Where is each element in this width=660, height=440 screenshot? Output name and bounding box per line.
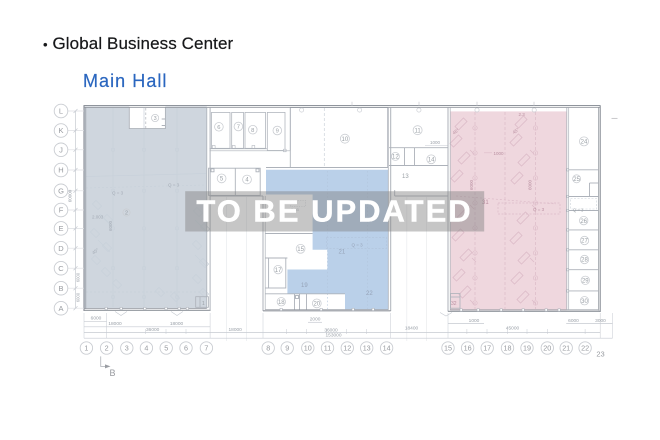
svg-text:Q = 3: Q = 3: [352, 242, 364, 247]
svg-text:Q = 3: Q = 3: [533, 207, 545, 212]
svg-text:15: 15: [297, 247, 304, 253]
svg-text:21: 21: [562, 344, 570, 353]
svg-text:H: H: [58, 166, 63, 175]
svg-text:9: 9: [276, 129, 279, 135]
svg-text:4: 4: [245, 178, 249, 184]
svg-text:28: 28: [581, 258, 588, 264]
svg-text:J: J: [59, 146, 63, 155]
svg-text:27: 27: [581, 239, 588, 245]
svg-text:8: 8: [266, 344, 270, 353]
svg-text:17: 17: [275, 268, 282, 274]
svg-text:6000: 6000: [568, 318, 579, 324]
svg-text:10: 10: [304, 344, 312, 353]
svg-text:24: 24: [581, 140, 588, 146]
svg-text:18000: 18000: [229, 327, 243, 333]
svg-text:6000: 6000: [528, 179, 533, 190]
svg-text:23: 23: [596, 350, 604, 359]
svg-text:1: 1: [84, 344, 88, 353]
svg-text:5: 5: [220, 177, 224, 183]
svg-text:20: 20: [543, 344, 551, 353]
svg-text:22: 22: [581, 344, 589, 353]
svg-text:2.3: 2.3: [519, 112, 526, 117]
svg-text:45000: 45000: [506, 326, 520, 332]
svg-text:1000: 1000: [469, 318, 480, 324]
svg-text:18: 18: [504, 344, 512, 353]
svg-text:Q = 3: Q = 3: [168, 183, 180, 188]
svg-text:L: L: [59, 107, 63, 116]
svg-text:6000: 6000: [108, 220, 113, 231]
svg-text:29: 29: [582, 279, 589, 285]
svg-text:25: 25: [573, 177, 580, 183]
svg-text:A: A: [58, 304, 63, 313]
svg-text:36000: 36000: [324, 327, 338, 333]
svg-text:19: 19: [301, 283, 308, 289]
svg-text:2.003: 2.003: [92, 215, 104, 220]
svg-text:3000: 3000: [595, 318, 606, 324]
svg-text:14: 14: [428, 158, 435, 164]
svg-text:20: 20: [313, 302, 320, 308]
svg-text:12: 12: [343, 344, 351, 353]
svg-text:1000: 1000: [430, 140, 441, 145]
svg-text:13: 13: [363, 344, 371, 353]
svg-text:3: 3: [125, 344, 129, 353]
svg-text:11: 11: [324, 344, 331, 353]
svg-text:3: 3: [154, 116, 157, 122]
svg-text:TO BE UPDATED: TO BE UPDATED: [196, 194, 472, 229]
svg-text:G: G: [58, 187, 64, 196]
svg-text:6000: 6000: [76, 292, 81, 302]
svg-text:21: 21: [339, 250, 346, 256]
svg-text:19: 19: [523, 344, 531, 353]
svg-text:30: 30: [581, 299, 588, 305]
svg-text:7: 7: [237, 125, 240, 131]
svg-text:18: 18: [278, 300, 285, 306]
svg-text:8: 8: [251, 128, 254, 134]
svg-text:16: 16: [464, 344, 472, 353]
svg-text:22: 22: [366, 291, 373, 297]
svg-text:18000: 18000: [108, 321, 122, 327]
svg-text:2: 2: [125, 211, 128, 217]
svg-text:10: 10: [342, 137, 349, 143]
svg-text:E: E: [58, 224, 63, 233]
svg-text:2000: 2000: [310, 317, 321, 323]
svg-text:B: B: [110, 368, 116, 378]
svg-text:1000: 1000: [494, 151, 505, 156]
svg-text:14: 14: [383, 344, 391, 353]
svg-text:17: 17: [483, 344, 491, 353]
svg-text:6000: 6000: [91, 316, 102, 322]
svg-text:12: 12: [392, 155, 399, 161]
svg-text:6: 6: [217, 125, 220, 131]
svg-text:B: B: [58, 284, 63, 293]
svg-text:1: 1: [202, 301, 205, 307]
svg-text:18400: 18400: [405, 326, 419, 332]
svg-text:11: 11: [414, 128, 421, 134]
svg-text:36000: 36000: [146, 327, 160, 333]
svg-text:D: D: [58, 244, 64, 253]
svg-text:153000: 153000: [325, 333, 341, 339]
svg-text:6000: 6000: [76, 272, 81, 282]
svg-text:18000: 18000: [170, 321, 184, 327]
svg-text:C: C: [58, 264, 64, 273]
svg-text:6: 6: [184, 344, 188, 353]
svg-text:32: 32: [451, 301, 457, 307]
svg-text:2: 2: [105, 344, 109, 353]
svg-text:4: 4: [144, 344, 148, 353]
svg-text:Q = 3: Q = 3: [112, 191, 124, 196]
svg-text:Q = 3: Q = 3: [573, 208, 584, 213]
svg-text:26: 26: [580, 219, 587, 225]
svg-text:K: K: [58, 126, 63, 135]
svg-text:13: 13: [402, 174, 409, 180]
svg-text:7: 7: [204, 344, 208, 353]
svg-text:15: 15: [444, 344, 452, 353]
svg-text:60000: 60000: [68, 189, 73, 202]
svg-text:5: 5: [164, 344, 168, 353]
svg-text:6000: 6000: [469, 179, 474, 190]
svg-text:F: F: [59, 206, 64, 215]
svg-text:9: 9: [285, 344, 289, 353]
